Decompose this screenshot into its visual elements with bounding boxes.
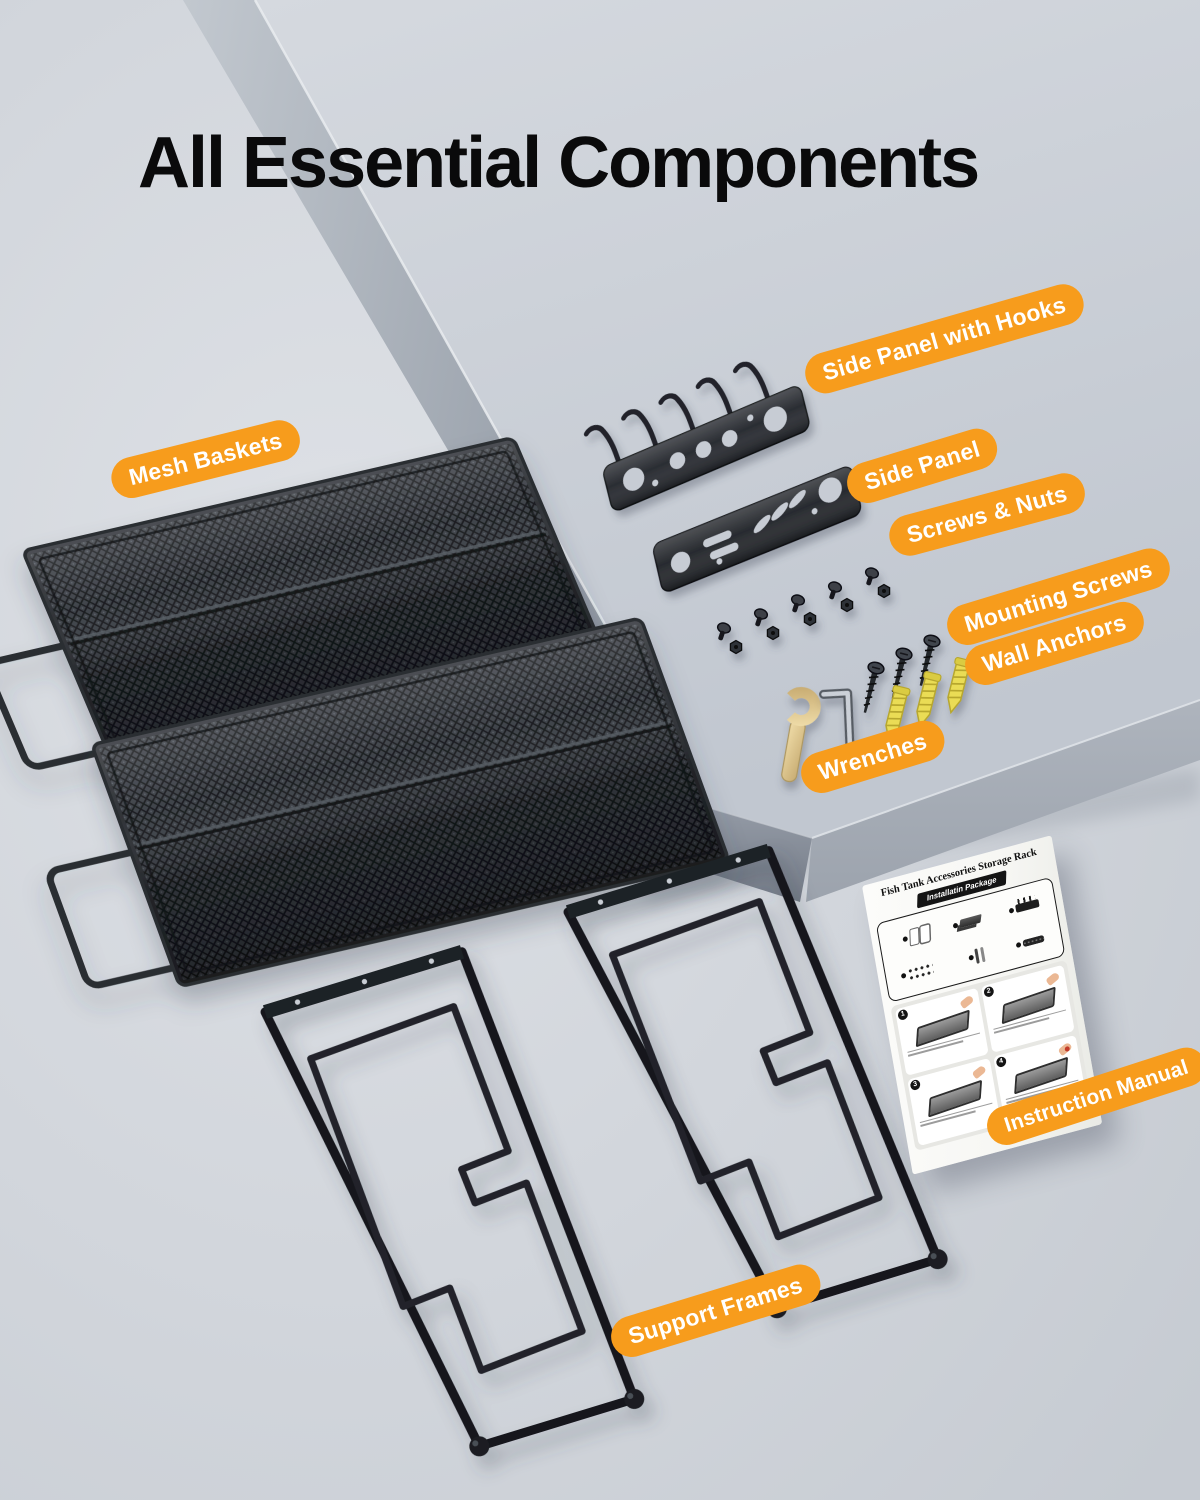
manual-part-brackets [901, 927, 920, 948]
manual-part-wrench [968, 949, 980, 966]
product-scene-svg [0, 0, 1200, 1500]
manual-part-board-hooks [1008, 899, 1039, 915]
step-number: 3 [910, 1078, 921, 1090]
step-number: 2 [983, 985, 994, 997]
manual-part-board [1015, 935, 1044, 949]
product-image: All Essential Components Fish Tank Acces… [0, 0, 1200, 1500]
page-title: All Essential Components [138, 122, 978, 204]
step-number: 1 [897, 1008, 908, 1020]
manual-part-baskets [953, 915, 982, 930]
manual-part-screws [900, 961, 934, 983]
step-number: 4 [995, 1055, 1006, 1067]
